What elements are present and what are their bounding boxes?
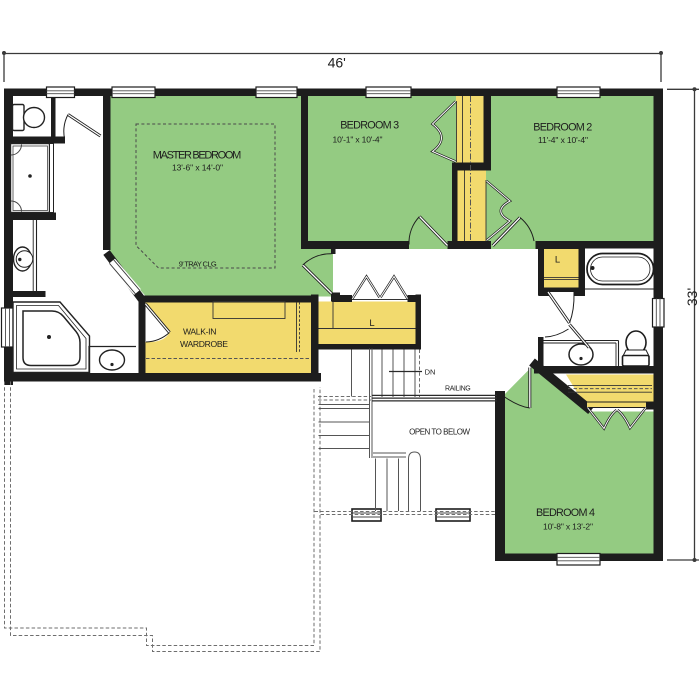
svg-text:DN: DN — [425, 367, 436, 376]
svg-text:L: L — [555, 255, 560, 266]
svg-text:10'-8" x 13'-2": 10'-8" x 13'-2" — [543, 522, 593, 532]
svg-text:BEDROOM 4: BEDROOM 4 — [536, 507, 595, 519]
svg-text:MASTER BEDROOM: MASTER BEDROOM — [153, 150, 242, 162]
svg-text:WALK-IN: WALK-IN — [183, 326, 217, 336]
svg-text:13'-6" x 14'-0": 13'-6" x 14'-0" — [172, 163, 223, 173]
svg-text:OPEN TO BELOW: OPEN TO BELOW — [409, 427, 470, 436]
svg-text:L: L — [369, 318, 374, 329]
svg-text:33': 33' — [684, 288, 700, 306]
svg-text:BEDROOM 3: BEDROOM 3 — [340, 119, 399, 131]
svg-text:11'-4" x 10'-4": 11'-4" x 10'-4" — [538, 135, 588, 145]
svg-text:46': 46' — [328, 54, 346, 70]
svg-text:WARDROBE: WARDROBE — [180, 339, 228, 349]
svg-text:RAILING: RAILING — [445, 385, 471, 392]
svg-text:10'-1" x 10'-4": 10'-1" x 10'-4" — [333, 135, 383, 145]
svg-text:BEDROOM 2: BEDROOM 2 — [533, 121, 592, 133]
svg-text:9' TRAY CLG: 9' TRAY CLG — [179, 260, 217, 269]
